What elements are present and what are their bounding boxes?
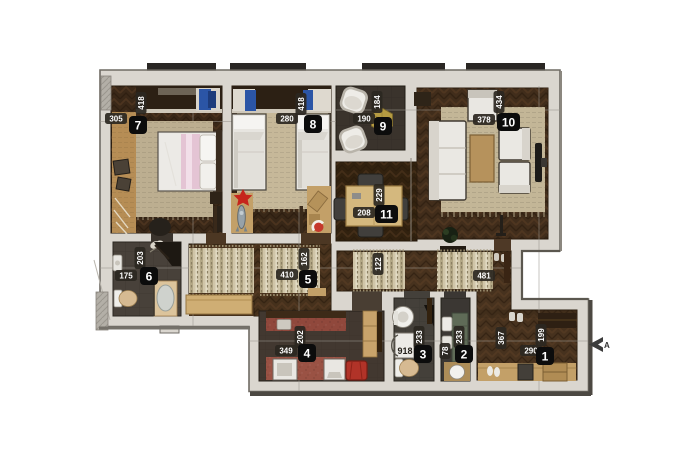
svg-text:8: 8	[310, 118, 317, 132]
svg-text:7: 7	[135, 119, 142, 133]
svg-text:229: 229	[375, 188, 384, 202]
svg-text:203: 203	[136, 251, 145, 265]
svg-text:1: 1	[542, 350, 549, 364]
svg-text:175: 175	[119, 272, 133, 281]
svg-text:9: 9	[380, 120, 387, 134]
svg-text:199: 199	[537, 328, 546, 342]
svg-text:280: 280	[280, 115, 294, 124]
svg-text:418: 418	[137, 96, 146, 110]
svg-text:434: 434	[495, 95, 504, 109]
svg-text:208: 208	[357, 209, 371, 218]
svg-text:11: 11	[380, 208, 393, 222]
svg-text:3: 3	[420, 348, 427, 362]
svg-text:A: A	[604, 341, 610, 350]
svg-text:918: 918	[397, 346, 412, 356]
svg-text:418: 418	[297, 97, 306, 111]
svg-text:233: 233	[415, 330, 424, 344]
svg-text:378: 378	[477, 116, 491, 125]
svg-text:305: 305	[109, 115, 123, 124]
svg-text:410: 410	[280, 271, 294, 280]
svg-text:122: 122	[374, 257, 383, 271]
svg-text:5: 5	[305, 273, 312, 287]
svg-text:78: 78	[441, 346, 450, 355]
svg-text:184: 184	[373, 95, 382, 109]
svg-text:233: 233	[455, 330, 464, 344]
svg-text:6: 6	[146, 270, 153, 284]
svg-text:481: 481	[477, 272, 491, 281]
svg-text:190: 190	[357, 115, 371, 124]
svg-text:4: 4	[304, 347, 311, 361]
svg-text:202: 202	[296, 330, 305, 344]
svg-text:10: 10	[502, 116, 516, 130]
svg-text:2: 2	[461, 348, 468, 362]
svg-text:162: 162	[300, 252, 309, 266]
svg-text:367: 367	[497, 331, 506, 345]
svg-text:349: 349	[279, 347, 293, 356]
